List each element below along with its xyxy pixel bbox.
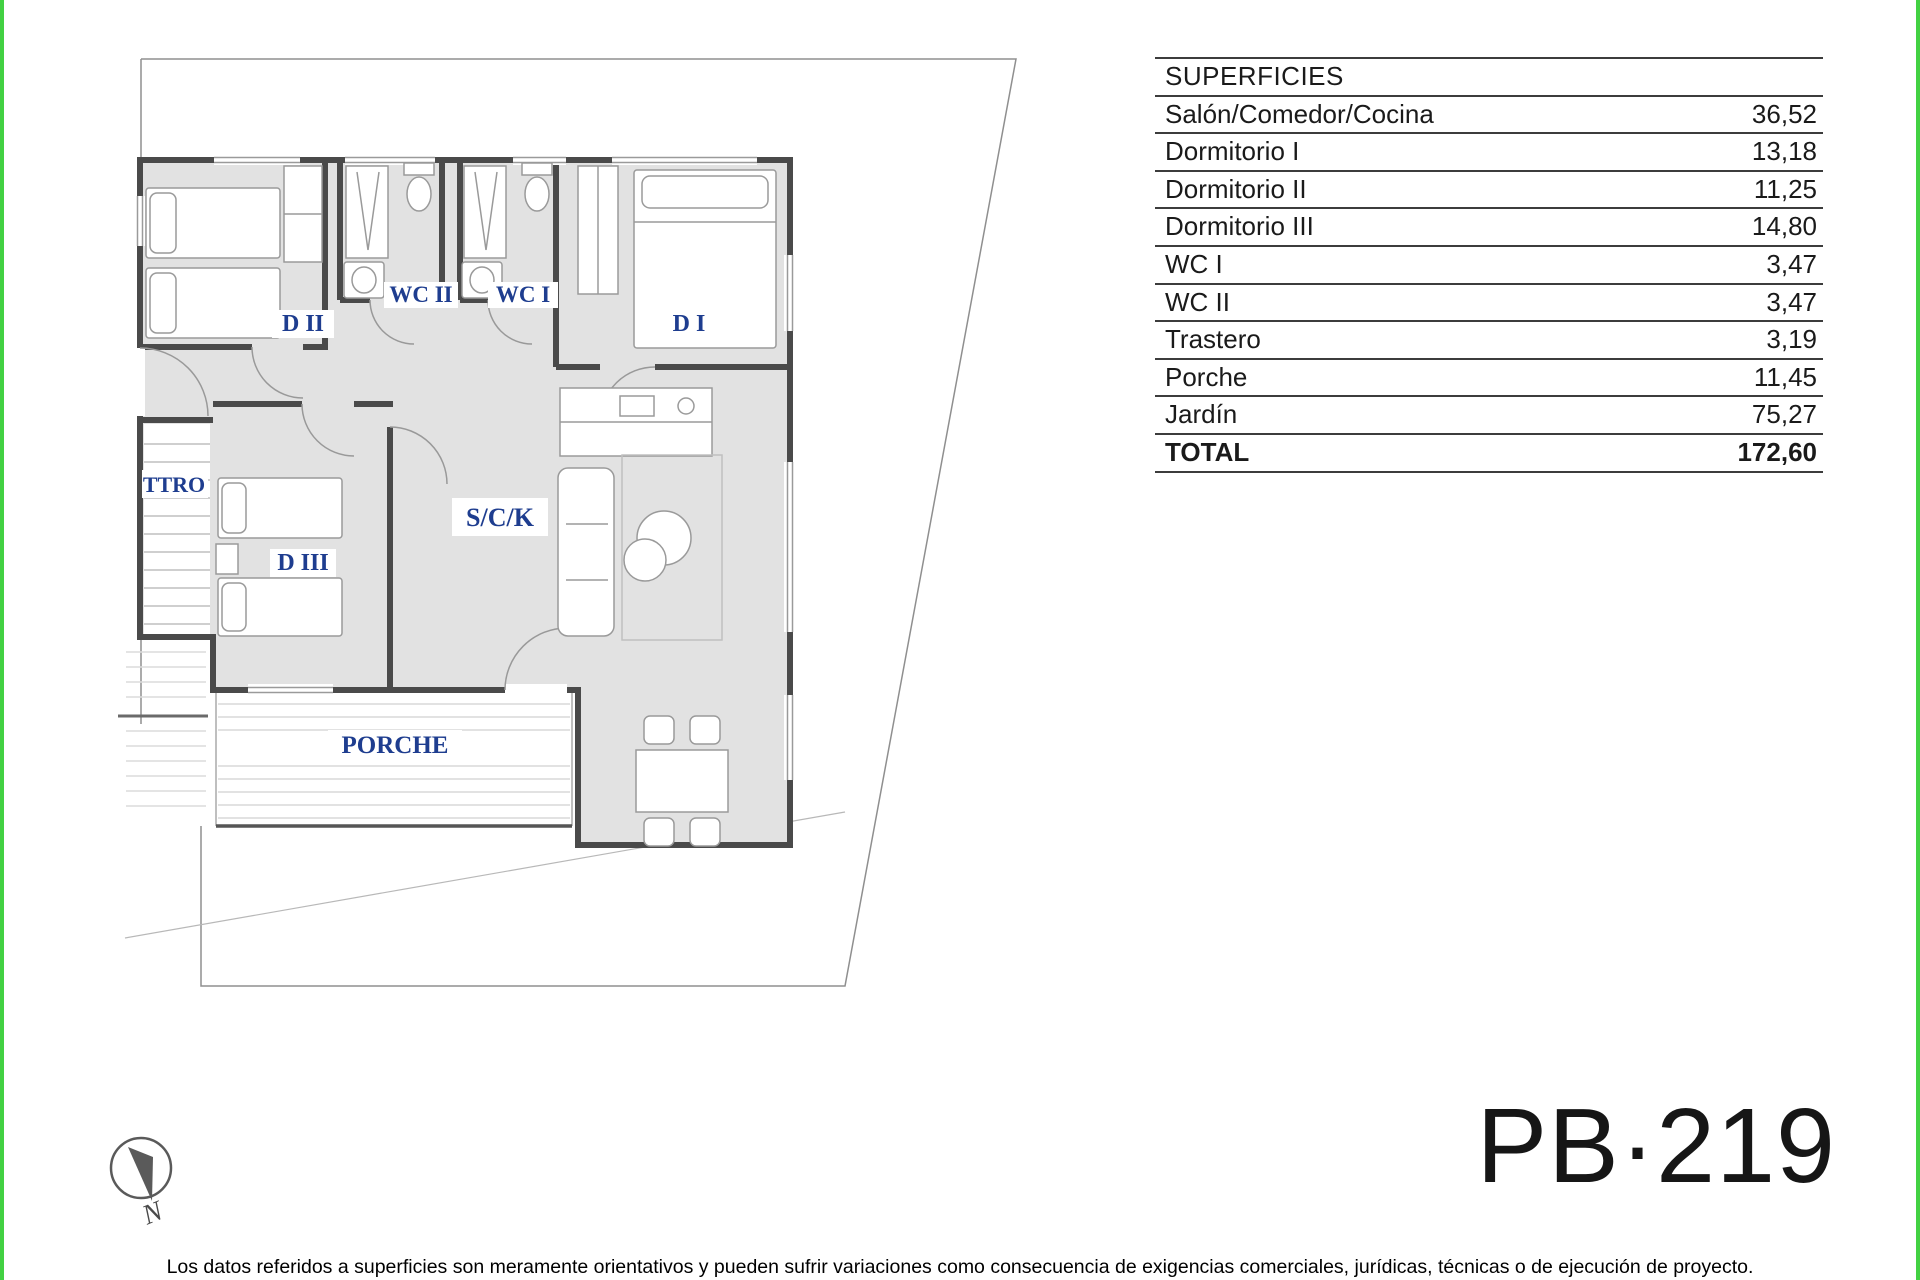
row-label: Dormitorio II	[1155, 172, 1307, 208]
row-value: 11,45	[1754, 360, 1823, 396]
row-value: 3,47	[1766, 285, 1823, 321]
table-header-row: SUPERFICIES	[1155, 59, 1823, 97]
row-label: Dormitorio I	[1155, 134, 1299, 170]
row-value: 36,52	[1752, 97, 1823, 133]
surfaces-table: SUPERFICIES Salón/Comedor/Cocina 36,52 D…	[1155, 57, 1823, 473]
row-value: 3,47	[1766, 247, 1823, 283]
table-row: WC I 3,47	[1155, 247, 1823, 285]
north-arrow: N	[111, 1138, 171, 1232]
label-dormitorio-2: D II	[282, 311, 324, 337]
table-row: Trastero 3,19	[1155, 322, 1823, 360]
row-label: WC I	[1155, 247, 1223, 283]
north-label: N	[137, 1195, 168, 1232]
label-salon-cocina: S/C/K	[466, 503, 535, 532]
row-value: 3,19	[1766, 322, 1823, 358]
row-label: Salón/Comedor/Cocina	[1155, 97, 1434, 133]
disclaimer-text: Los datos referidos a superficies son me…	[0, 1256, 1920, 1279]
table-row: Dormitorio I 13,18	[1155, 134, 1823, 172]
row-label: Porche	[1155, 360, 1247, 396]
label-porche: PORCHE	[342, 732, 449, 759]
trastero-stairs	[144, 424, 210, 634]
exterior-steps	[126, 652, 206, 806]
row-value: 14,80	[1752, 209, 1823, 245]
label-wc-1: WC I	[496, 282, 550, 307]
row-label: Trastero	[1155, 322, 1261, 358]
label-dormitorio-1: D I	[673, 311, 706, 337]
table-total-row: TOTAL 172,60	[1155, 435, 1823, 473]
row-label: Jardín	[1155, 397, 1237, 433]
row-value: 13,18	[1752, 134, 1823, 170]
label-trastero: TTRO	[143, 472, 205, 497]
table-row: Salón/Comedor/Cocina 36,52	[1155, 97, 1823, 135]
row-label: Dormitorio III	[1155, 209, 1314, 245]
table-row: Porche 11,45	[1155, 360, 1823, 398]
row-label: WC II	[1155, 285, 1230, 321]
table-row: WC II 3,47	[1155, 285, 1823, 323]
table-row: Jardín 75,27	[1155, 397, 1823, 435]
table-row: Dormitorio III 14,80	[1155, 209, 1823, 247]
row-value: 75,27	[1752, 397, 1823, 433]
table-row: Dormitorio II 11,25	[1155, 172, 1823, 210]
table-title: SUPERFICIES	[1155, 59, 1344, 95]
label-dormitorio-3: D III	[277, 550, 328, 576]
total-value: 172,60	[1737, 435, 1823, 471]
label-wc-2: WC II	[389, 282, 452, 307]
plan-code: PB·219	[1476, 1086, 1836, 1207]
total-label: TOTAL	[1155, 435, 1249, 471]
row-value: 11,25	[1754, 172, 1823, 208]
